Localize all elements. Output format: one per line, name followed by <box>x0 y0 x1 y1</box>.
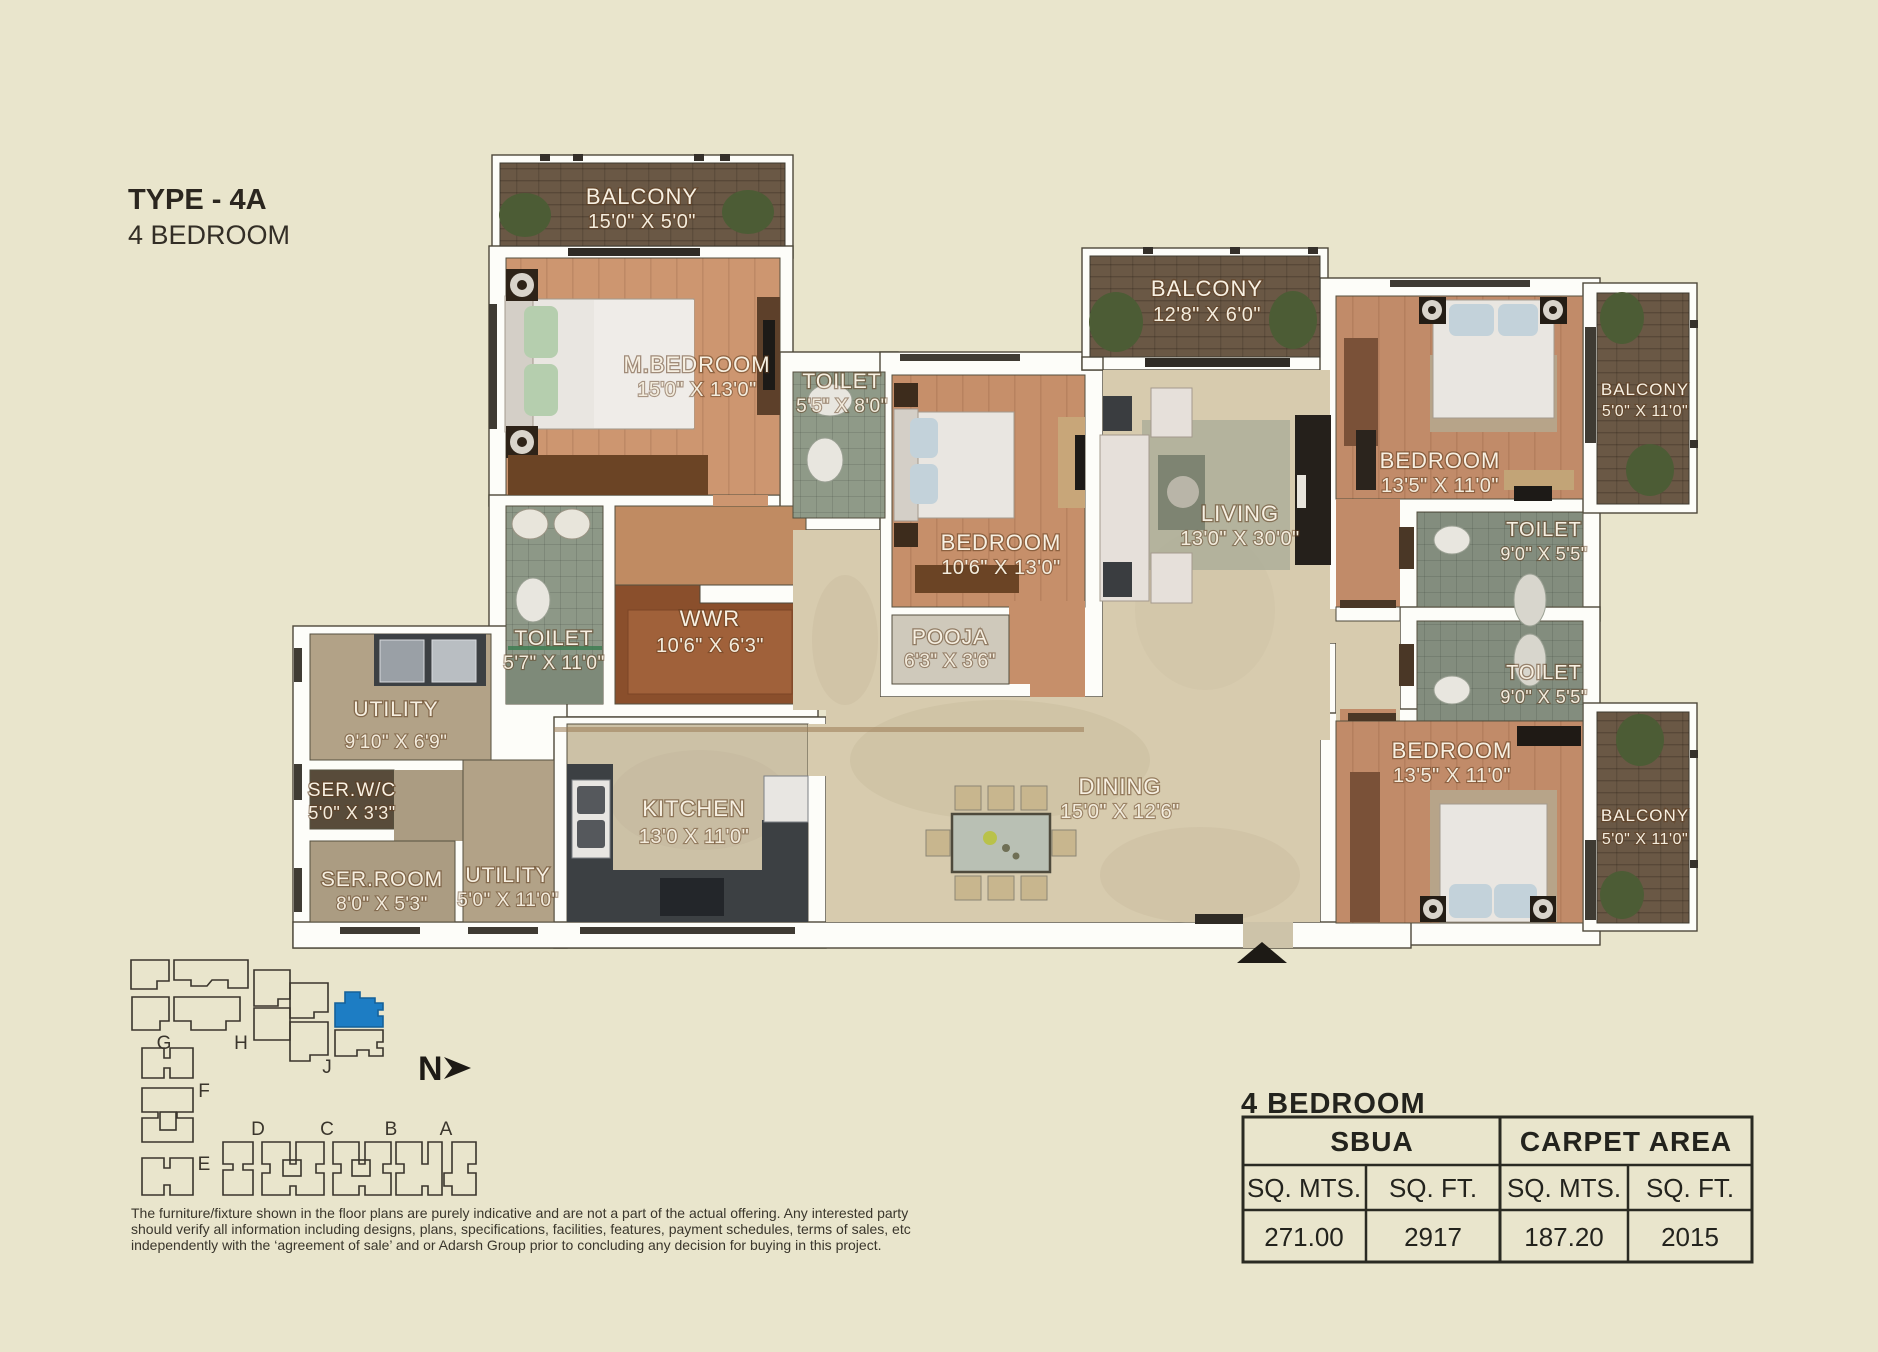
svg-text:F: F <box>198 1081 210 1102</box>
svg-text:5'0" X 3'3": 5'0" X 3'3" <box>308 803 395 823</box>
svg-text:15'0" X 12'6": 15'0" X 12'6" <box>1060 801 1180 823</box>
svg-text:E: E <box>198 1154 211 1175</box>
svg-text:4 BEDROOM: 4 BEDROOM <box>1241 1088 1426 1120</box>
svg-text:5'5" X 8'0": 5'5" X 8'0" <box>796 396 888 417</box>
svg-text:5'0" X 11'0": 5'0" X 11'0" <box>1602 831 1688 848</box>
svg-text:8'0" X 5'3": 8'0" X 5'3" <box>336 894 428 915</box>
svg-text:TOILET: TOILET <box>1506 519 1582 541</box>
svg-text:9'0" X 5'5": 9'0" X 5'5" <box>1500 544 1587 564</box>
svg-text:LIVING: LIVING <box>1201 501 1279 526</box>
svg-text:TYPE - 4A: TYPE - 4A <box>128 184 267 216</box>
svg-text:9'10" X 6'9": 9'10" X 6'9" <box>345 732 448 753</box>
svg-text:WWR: WWR <box>680 606 740 631</box>
svg-text:5'7" X 11'0": 5'7" X 11'0" <box>503 653 604 674</box>
svg-text:BALCONY: BALCONY <box>1601 380 1689 399</box>
svg-text:UTILITY: UTILITY <box>353 698 438 721</box>
svg-text:5'0" X 11'0": 5'0" X 11'0" <box>1602 403 1688 420</box>
svg-text:15'0" X 5'0": 15'0" X 5'0" <box>588 211 696 233</box>
svg-text:TOILET: TOILET <box>514 627 593 650</box>
svg-text:6'3" X 3'6": 6'3" X 3'6" <box>904 651 996 672</box>
svg-text:should verify all information: should verify all information including … <box>131 1221 911 1237</box>
svg-text:5'0" X 11'0": 5'0" X 11'0" <box>457 890 558 911</box>
svg-text:2015: 2015 <box>1661 1222 1719 1252</box>
svg-text:J: J <box>322 1057 332 1078</box>
svg-text:BEDROOM: BEDROOM <box>1380 448 1501 473</box>
svg-text:4 BEDROOM: 4 BEDROOM <box>128 220 290 250</box>
svg-text:9'0" X 5'5": 9'0" X 5'5" <box>1500 687 1587 707</box>
svg-text:SER.ROOM: SER.ROOM <box>321 868 443 891</box>
svg-text:15'0" X 13'0": 15'0" X 13'0" <box>637 379 757 401</box>
svg-text:SQ. FT.: SQ. FT. <box>1389 1173 1477 1203</box>
svg-text:TOILET: TOILET <box>1506 662 1582 684</box>
svg-text:M.BEDROOM: M.BEDROOM <box>623 352 770 377</box>
svg-text:KITCHEN: KITCHEN <box>642 796 746 821</box>
svg-text:BEDROOM: BEDROOM <box>1392 738 1513 763</box>
svg-text:13'5" X 11'0": 13'5" X 11'0" <box>1393 765 1511 787</box>
svg-text:13'0 X 11'0": 13'0 X 11'0" <box>639 826 749 848</box>
svg-text:12'8" X 6'0": 12'8" X 6'0" <box>1153 304 1261 326</box>
svg-text:independently with the ‘agreem: independently with the ‘agreement of sal… <box>131 1237 881 1253</box>
svg-text:TOILET: TOILET <box>802 370 881 393</box>
svg-text:SQ. MTS.: SQ. MTS. <box>1247 1173 1361 1203</box>
svg-text:13'5" X 11'0": 13'5" X 11'0" <box>1381 475 1499 497</box>
svg-text:B: B <box>385 1119 398 1140</box>
svg-text:C: C <box>320 1119 334 1140</box>
svg-text:SQ. FT.: SQ. FT. <box>1646 1173 1734 1203</box>
svg-text:BALCONY: BALCONY <box>586 184 698 209</box>
svg-text:10'6" X 13'0": 10'6" X 13'0" <box>941 557 1061 579</box>
svg-text:A: A <box>440 1119 453 1140</box>
svg-text:SER.W/C: SER.W/C <box>308 780 396 801</box>
svg-text:D: D <box>251 1119 265 1140</box>
svg-text:SQ. MTS.: SQ. MTS. <box>1507 1173 1621 1203</box>
svg-text:CARPET AREA: CARPET AREA <box>1520 1126 1732 1157</box>
svg-text:UTILITY: UTILITY <box>465 864 550 887</box>
svg-text:271.00: 271.00 <box>1264 1222 1344 1252</box>
svg-text:N: N <box>418 1050 443 1088</box>
svg-text:BEDROOM: BEDROOM <box>941 530 1062 555</box>
svg-text:H: H <box>234 1033 248 1054</box>
svg-text:The furniture/fixture shown in: The furniture/fixture shown in the floor… <box>131 1205 908 1221</box>
svg-text:POOJA: POOJA <box>912 626 988 649</box>
svg-text:BALCONY: BALCONY <box>1151 276 1263 301</box>
svg-text:13'0" X 30'0": 13'0" X 30'0" <box>1180 528 1300 550</box>
svg-text:10'6" X 6'3": 10'6" X 6'3" <box>656 635 764 657</box>
svg-text:2917: 2917 <box>1404 1222 1462 1252</box>
svg-text:DINING: DINING <box>1079 774 1162 799</box>
svg-text:187.20: 187.20 <box>1524 1222 1604 1252</box>
svg-text:SBUA: SBUA <box>1330 1126 1413 1157</box>
svg-text:BALCONY: BALCONY <box>1601 806 1689 825</box>
